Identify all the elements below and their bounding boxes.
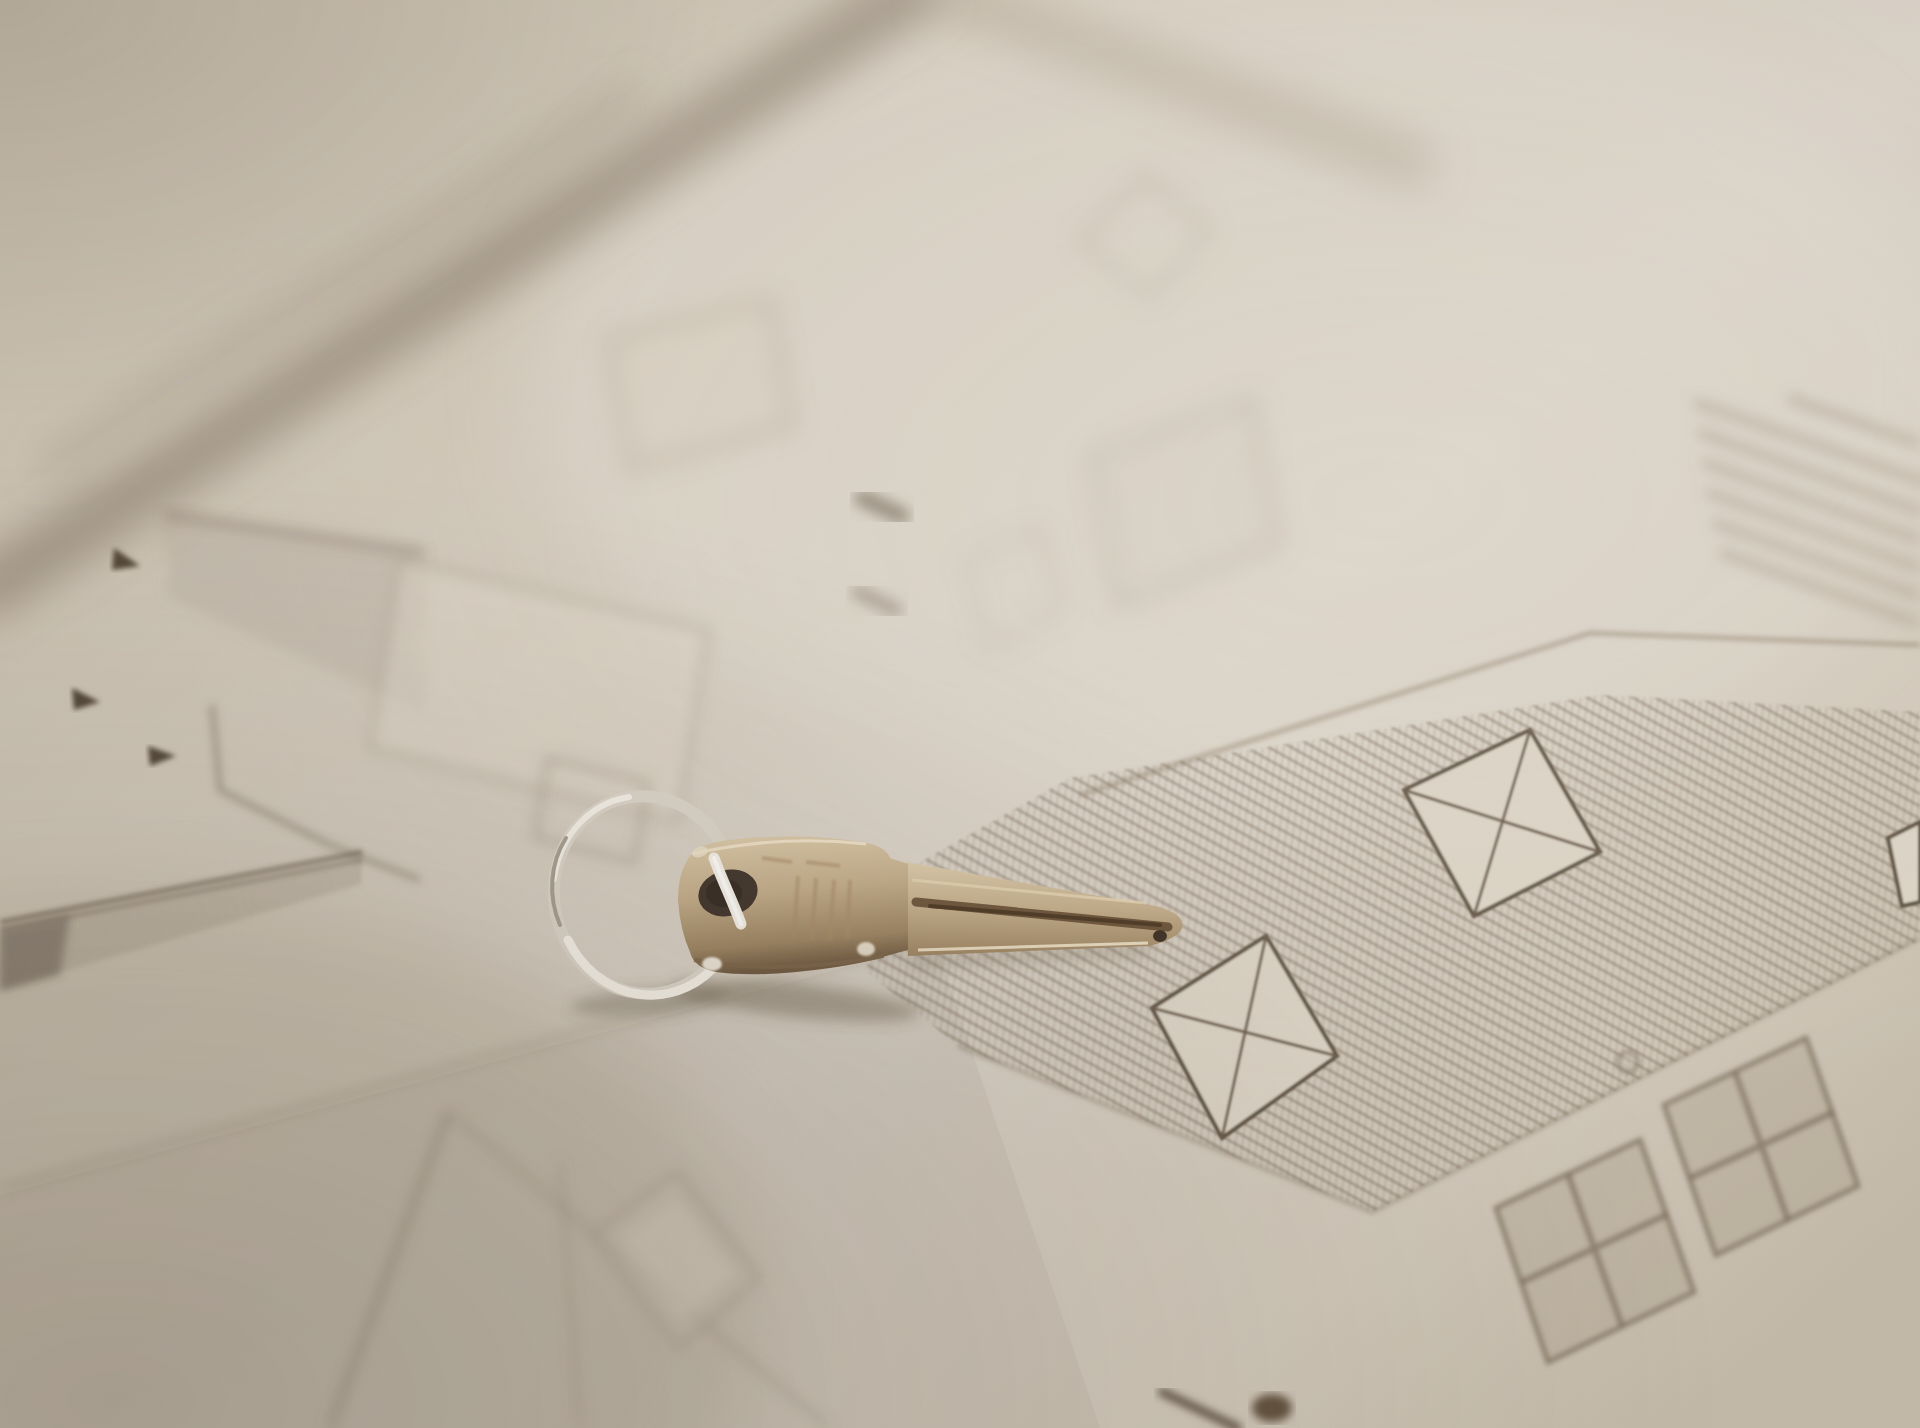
scene-canvas bbox=[0, 0, 1920, 1428]
door-knob-circle bbox=[1618, 1052, 1638, 1072]
dark-pencil-blob bbox=[1252, 1394, 1292, 1422]
blade-tip-notch bbox=[1153, 930, 1167, 942]
photo-key-on-blueprints bbox=[0, 0, 1920, 1428]
specular-dot-right bbox=[857, 942, 875, 956]
specular-dot-left bbox=[702, 957, 722, 971]
